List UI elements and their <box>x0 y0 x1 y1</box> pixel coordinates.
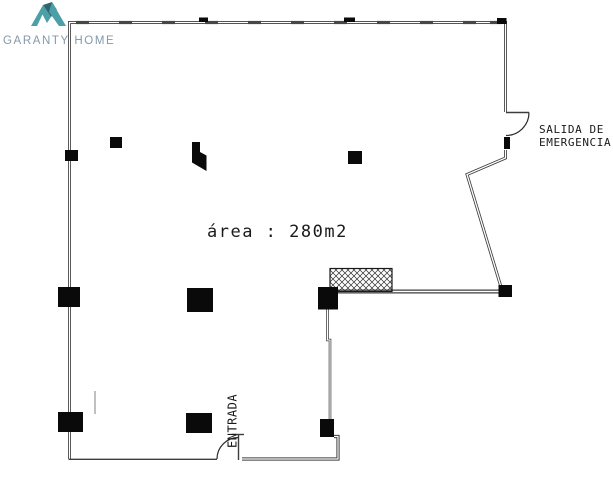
window-dash <box>162 21 175 24</box>
thin-walls <box>69 113 529 461</box>
column <box>320 419 334 437</box>
floorplan-page: área : 280m2 SALIDA DE EMERGENCIA ENTRAD… <box>0 0 613 480</box>
column <box>58 412 83 432</box>
column <box>192 142 207 171</box>
column <box>110 137 122 148</box>
wall-right-zigzag <box>467 150 506 287</box>
column <box>499 285 513 297</box>
floor-plan-drawing: área : 280m2 SALIDA DE EMERGENCIA ENTRAD… <box>0 0 613 480</box>
column <box>187 288 213 312</box>
wall-bottom-right <box>242 437 338 460</box>
logo-shape-right <box>49 2 66 26</box>
window-dash <box>291 21 304 24</box>
window-dash <box>248 21 261 24</box>
column <box>186 413 212 433</box>
wall-tick <box>497 18 507 24</box>
brand-logo: GARANTY HOME <box>2 1 124 55</box>
column <box>58 287 80 307</box>
window-dash <box>420 21 433 24</box>
emergency-door-swing <box>506 113 529 136</box>
area-label: área : 280m2 <box>207 222 348 242</box>
window-dash <box>463 21 476 24</box>
wall-tick <box>199 18 208 23</box>
wall-core <box>242 437 338 460</box>
column <box>318 287 338 310</box>
stairs-hatch <box>330 269 392 292</box>
emergency-exit-label-line2: EMERGENCIA <box>539 136 611 149</box>
brand-name: GARANTY HOME <box>3 35 115 47</box>
emergency-door-stop <box>504 137 510 149</box>
entrance-label: ENTRADA <box>226 394 240 448</box>
window-dash <box>377 21 390 24</box>
column <box>65 150 78 161</box>
wall-tick <box>344 18 355 23</box>
brand-logo-icon <box>31 2 66 26</box>
emergency-exit-label-line1: SALIDA DE <box>539 123 604 136</box>
column <box>348 151 362 164</box>
